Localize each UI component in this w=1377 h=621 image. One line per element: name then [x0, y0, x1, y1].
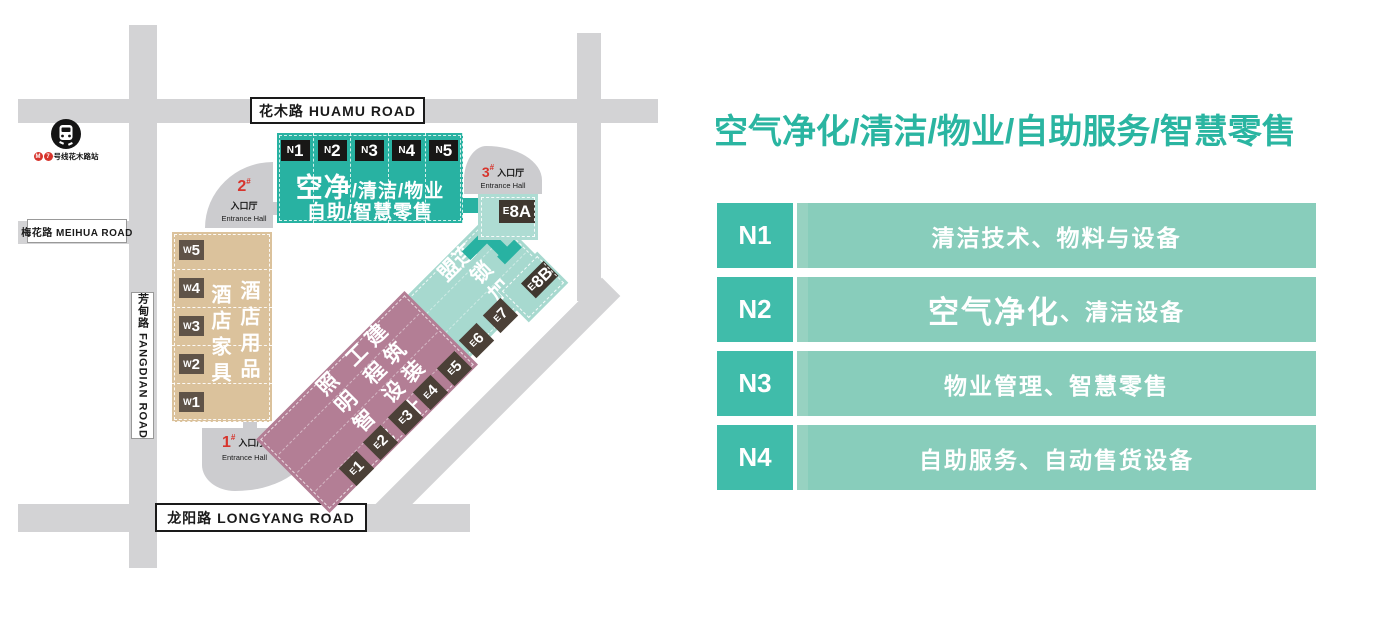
entrance3-label-cn: 入口厅	[497, 169, 524, 178]
legend-hall-n4: N4	[717, 425, 793, 490]
entrance2-label-cn: 入口厅	[230, 199, 257, 212]
hall-badge-n3: N3	[355, 140, 384, 161]
hall-badge-n1: N1	[281, 140, 310, 161]
hall-north-label-line2: 自助/智慧零售	[277, 197, 463, 224]
hall-legend-table: N1 清洁技术、物料与设备 N2 空气净化、清洁设备 N3 物业管理、智慧零售 …	[717, 203, 1316, 499]
road-label-fangdian: 芳甸路 FANGDIAN ROAD	[131, 292, 154, 439]
hall-badge-w5: W5	[179, 240, 204, 260]
hall-west-label-1: 酒店家具	[209, 284, 229, 388]
legend-desc-n4: 自助服务、自动售货设备	[919, 441, 1194, 475]
legend-row-n2: N2 空气净化、清洁设备	[717, 277, 1316, 342]
road-right-vertical	[577, 33, 601, 301]
metro-logo-icon: M	[34, 152, 43, 161]
entrance3-number: 3	[482, 165, 490, 179]
legend-hall-n1: N1	[717, 203, 793, 268]
hall-west-label-2: 酒店用品	[238, 280, 258, 388]
hall-badge-e8a: E8A	[499, 200, 535, 223]
hall-badge-w1: W1	[179, 392, 204, 412]
legend-desc-n2-em: 空气净化	[928, 287, 1060, 332]
hall-badge-w2: W2	[179, 354, 204, 374]
road-label-huamu: 花木路 HUAMU ROAD	[250, 97, 425, 124]
hall-e8a: E8A	[478, 194, 538, 240]
legend-desc-n1: 清洁技术、物料与设备	[932, 219, 1182, 253]
legend-desc-n2: 、清洁设备	[1060, 293, 1185, 327]
hall-badge-n2: N2	[318, 140, 347, 161]
connector-north-e8a	[461, 198, 479, 213]
train-icon	[51, 119, 81, 149]
page-title: 空气净化/清洁/物业/自助服务/智慧零售	[714, 104, 1296, 153]
metro-station-label: 号线花木路站	[54, 151, 99, 162]
hall-badge-w3: W3	[179, 316, 204, 336]
entrance2-label-en: Entrance Hall	[221, 214, 266, 223]
entrance1-number: 1	[222, 435, 231, 451]
hall-w5-section: W5	[172, 232, 272, 270]
legend-row-n3: N3 物业管理、智慧零售	[717, 351, 1316, 416]
metro-line-number: 7	[44, 152, 53, 161]
hall-west-block: W5 W4 W3 W2 W1 酒店家具 酒店用品	[172, 232, 272, 422]
entrance2-number: 2	[237, 179, 246, 195]
entrance-hall-2: 2# 入口厅 Entrance Hall	[205, 162, 273, 228]
entrance1-label-en: Entrance Hall	[222, 453, 267, 462]
legend-row-n1: N1 清洁技术、物料与设备	[717, 203, 1316, 268]
legend-hall-n2: N2	[717, 277, 793, 342]
entrance-hall-3: 3# 入口厅 Entrance Hall	[464, 146, 542, 194]
metro-station-caption: M 7 号线花木路站	[26, 151, 106, 162]
entrance3-label-en: Entrance Hall	[480, 181, 525, 190]
hall-badge-w4: W4	[179, 278, 204, 298]
hall-badge-e8b: E8B	[521, 261, 558, 298]
legend-row-n4: N4 自助服务、自动售货设备	[717, 425, 1316, 490]
hall-north-block: N1 N2 N3 N4 N5 空净/清洁/物业 自助/智慧零售	[277, 133, 463, 223]
hall-badge-n5: N5	[429, 140, 458, 161]
hall-badge-n4: N4	[392, 140, 421, 161]
hall-w1-section: W1	[172, 384, 272, 422]
metro-station: M 7 号线花木路站	[26, 119, 106, 162]
legend-hall-n3: N3	[717, 351, 793, 416]
road-label-meihua: 梅花路 MEIHUA ROAD	[27, 219, 127, 243]
legend-desc-n3: 物业管理、智慧零售	[944, 367, 1169, 401]
